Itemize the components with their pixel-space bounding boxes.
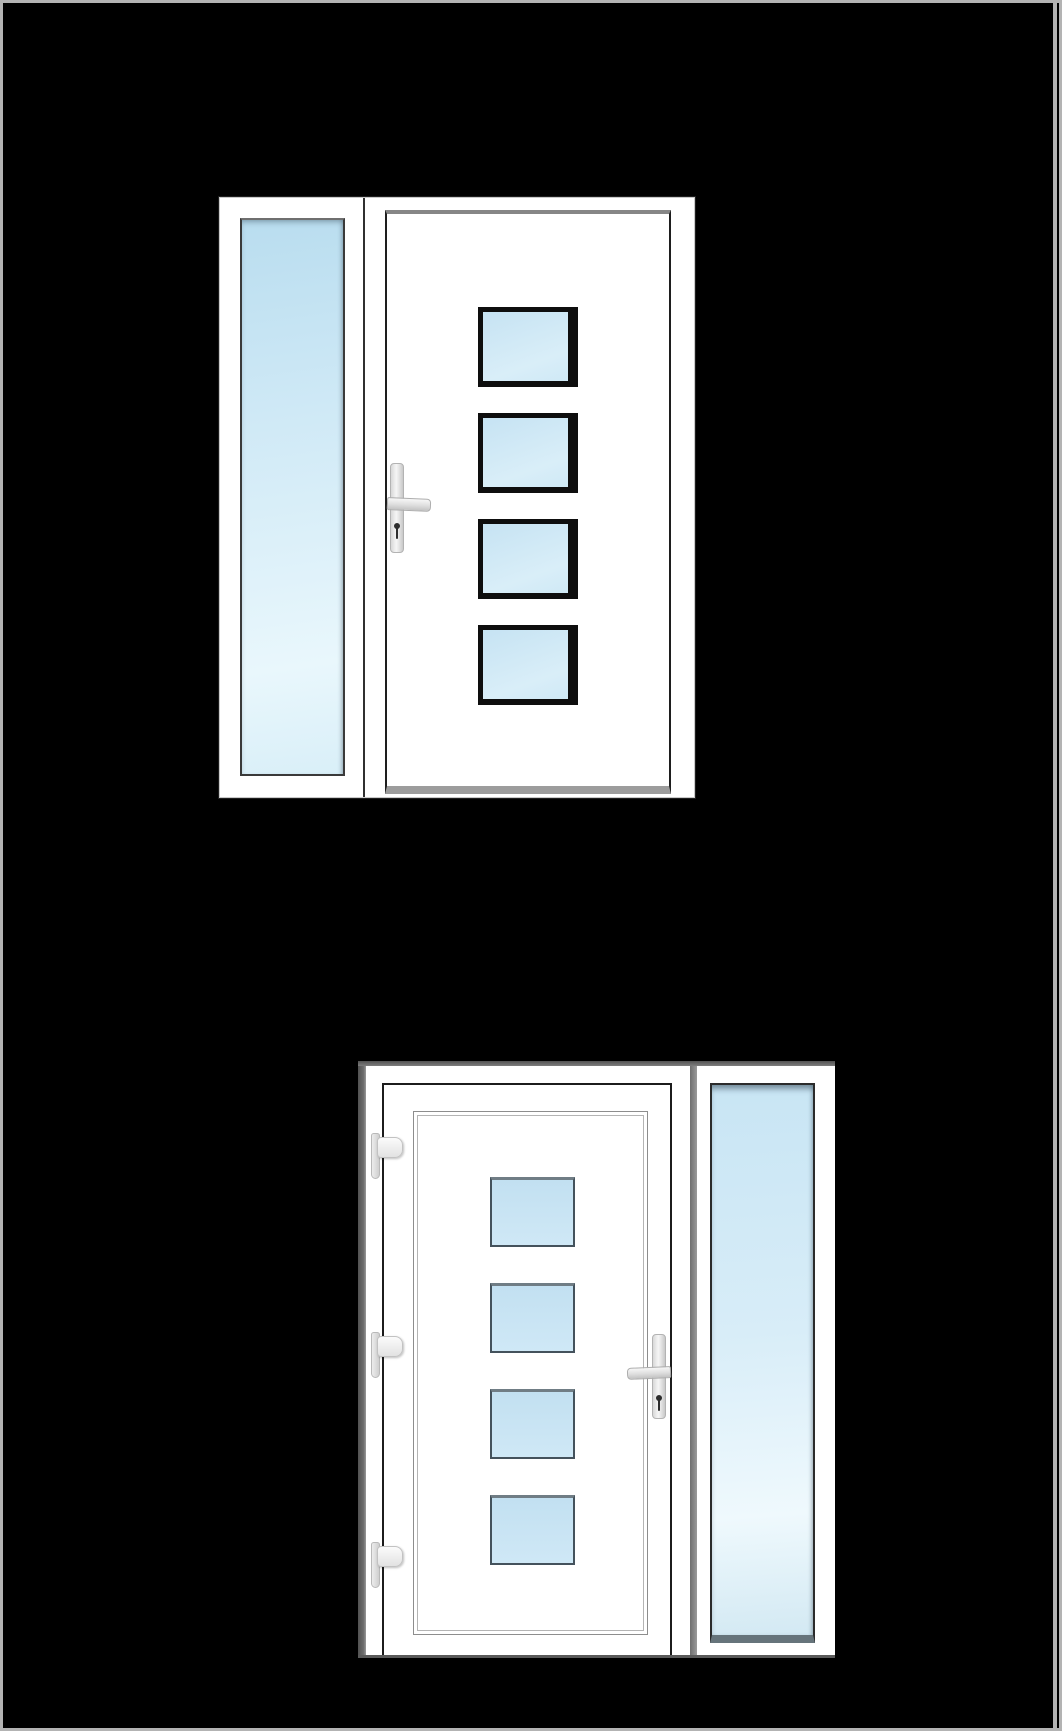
frame-shadow-bottom [358,1655,835,1658]
glass-pane [483,312,568,381]
glass-panel [490,1177,575,1247]
hinge-leaf-part [377,1546,403,1567]
frame-shadow-left [358,1061,366,1658]
sidelight-glass [240,218,345,776]
door-handle-lever [387,497,432,512]
keyhole-slot [658,1399,660,1411]
right-edge-rule [1053,0,1057,1731]
glass-pane [492,1498,573,1563]
frame-joint-line [690,1061,697,1658]
glass-panel [478,413,578,493]
glass-pane [492,1392,573,1457]
glass-panel [490,1495,575,1565]
door-assembly-exterior-view [219,197,695,798]
glass-panel [478,307,578,387]
glass-pane [492,1180,573,1245]
keyhole-slot [396,527,398,539]
sidelight-glass [710,1083,815,1643]
glass-pane [483,630,568,699]
glass-panel [478,625,578,705]
glass-panel [478,519,578,599]
glass-pane [492,1286,573,1351]
frame-joint-line [363,198,365,797]
glass-pane [483,418,568,487]
keyhole-icon [394,523,400,540]
door-assembly-interior-view [358,1061,835,1658]
hinge-leaf-part [377,1137,403,1158]
hinge-leaf-part [377,1336,403,1357]
glass-panel [490,1283,575,1353]
door-configurator-canvas [0,0,1062,1731]
glass-pane [483,524,568,593]
frame-shadow-top [358,1061,835,1066]
glass-panel [490,1389,575,1459]
keyhole-icon [656,1395,662,1412]
door-handle-lever [627,1366,671,1380]
